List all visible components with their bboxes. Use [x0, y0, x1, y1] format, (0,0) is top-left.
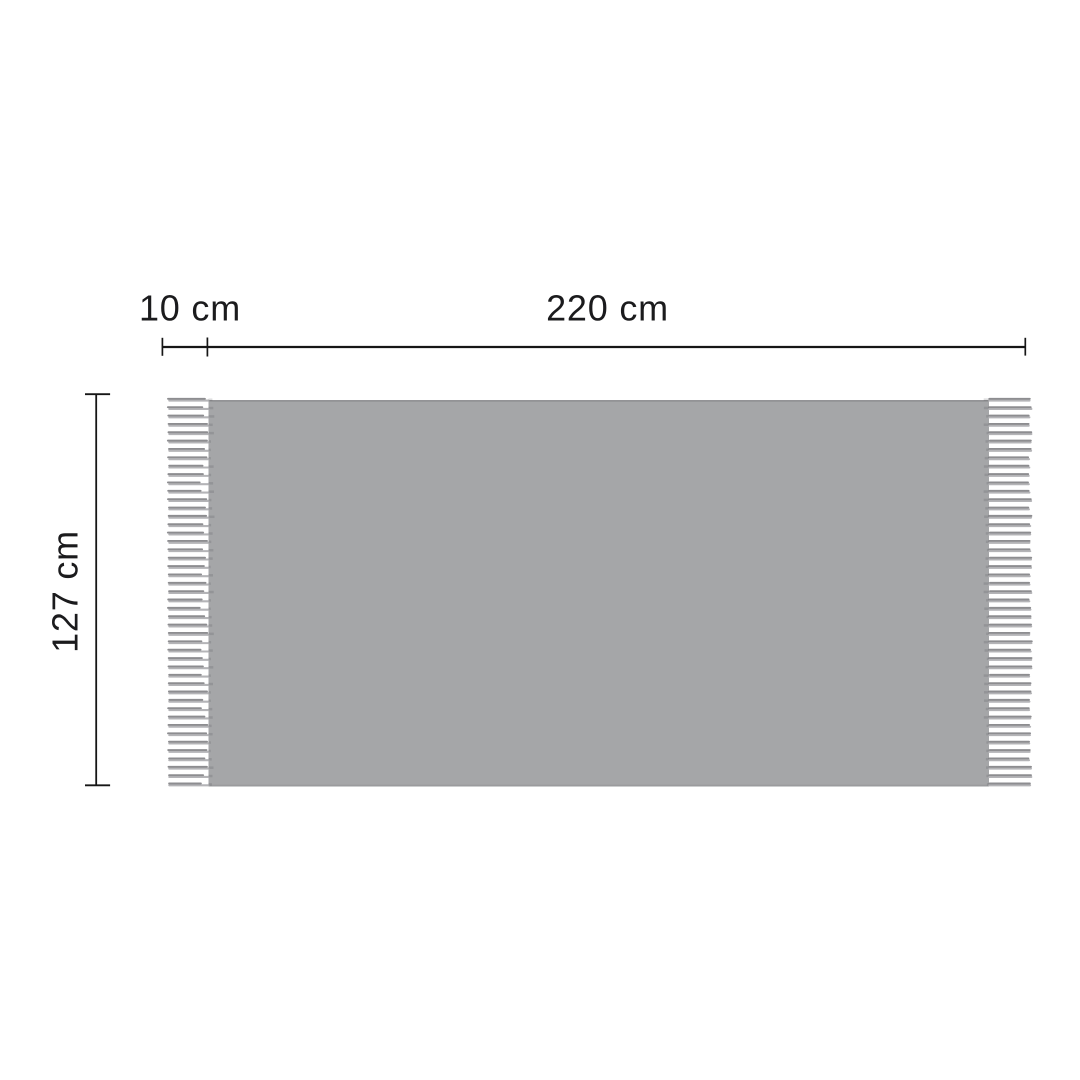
- svg-text:220 cm: 220 cm: [546, 288, 669, 329]
- svg-text:127 cm: 127 cm: [44, 530, 85, 653]
- svg-text:10 cm: 10 cm: [139, 288, 241, 329]
